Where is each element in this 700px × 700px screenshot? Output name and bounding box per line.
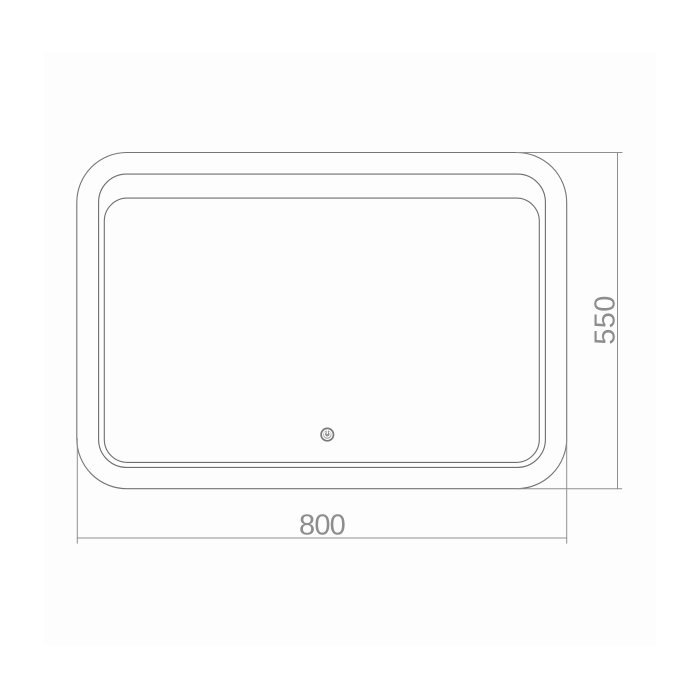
svg-text:550: 550 [589, 295, 621, 345]
svg-text:800: 800 [299, 510, 345, 542]
